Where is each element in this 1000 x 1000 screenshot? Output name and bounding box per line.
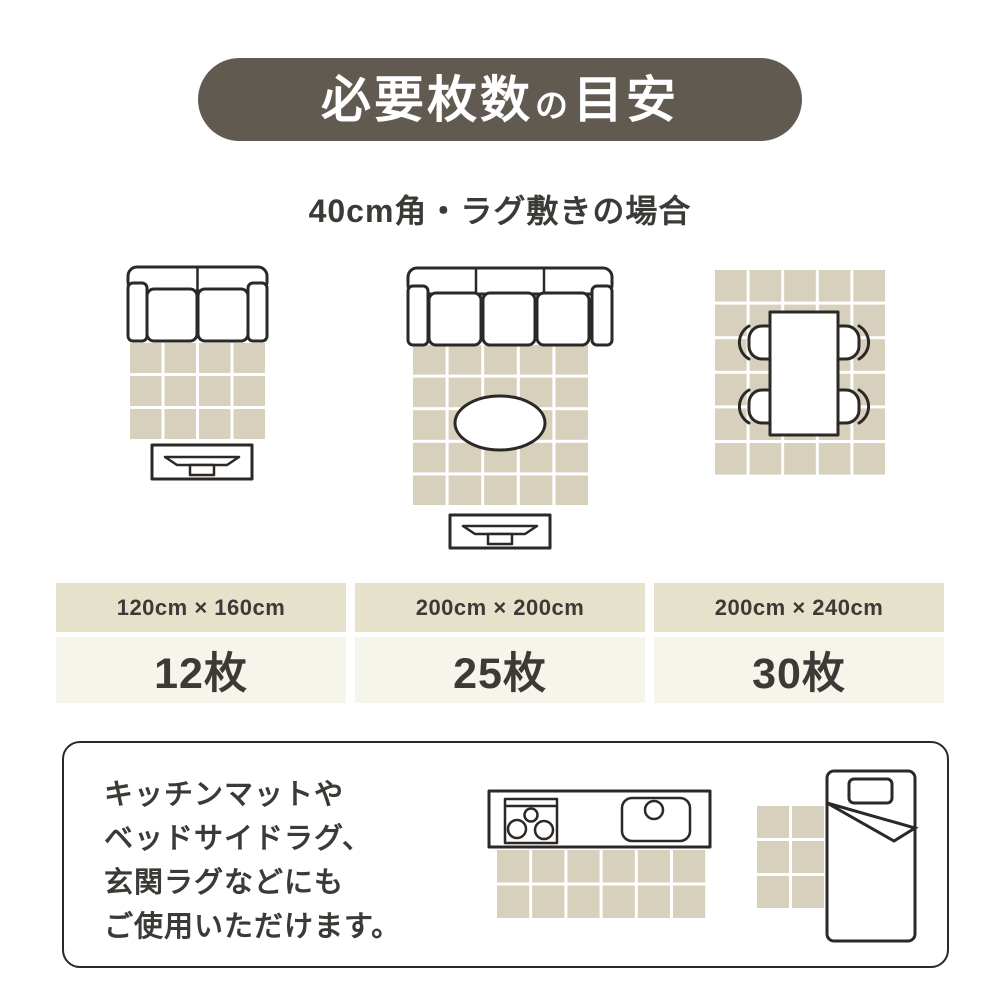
usage-note-text: キッチンマットや ベッドサイドラグ、 玄関ラグなどにも ご使用いただけます。 — [104, 773, 401, 949]
size-header: 200cm × 240cm — [654, 583, 944, 632]
kitchen-counter-icon — [489, 791, 710, 847]
infographic-page: 必要枚数 の 目安 40cm角・ラグ敷きの場合 — [0, 0, 1000, 1000]
title-particle: の — [535, 89, 571, 122]
title-part2: 目安 — [573, 75, 679, 125]
rug-tiles — [130, 343, 265, 439]
size-table: 120cm × 160cm 12枚 200cm × 200cm 25枚 200c… — [56, 583, 944, 703]
tile-count: 12枚 — [56, 637, 346, 703]
oval-table-icon — [455, 396, 545, 450]
bed-icon — [827, 771, 915, 941]
kitchen-mat-illustration — [479, 769, 719, 929]
room-diagram-200x200 — [395, 255, 615, 555]
subtitle: 40cm角・ラグ敷きの場合 — [0, 186, 1000, 232]
dining-table-icon — [770, 312, 838, 435]
usage-note-box: キッチンマットや ベッドサイドラグ、 玄関ラグなどにも ご使用いただけます。 — [62, 741, 949, 968]
tile-count: 25枚 — [355, 637, 645, 703]
title-part1: 必要枚数 — [321, 75, 533, 125]
note-line: ベッドサイドラグ、 — [104, 817, 401, 861]
table-column: 120cm × 160cm 12枚 — [56, 583, 346, 703]
size-header: 120cm × 160cm — [56, 583, 346, 632]
page-title: 必要枚数 の 目安 — [321, 75, 679, 125]
note-line: 玄関ラグなどにも — [104, 861, 401, 905]
bedside-rug-illustration — [744, 753, 924, 958]
tile-count: 30枚 — [654, 637, 944, 703]
kitchen-mat-tiles — [497, 850, 705, 918]
three-seat-sofa-icon — [408, 268, 612, 345]
table-column: 200cm × 240cm 30枚 — [654, 583, 944, 703]
bedside-rug-tiles — [757, 806, 824, 908]
note-line: キッチンマットや — [104, 773, 401, 817]
title-banner: 必要枚数 の 目安 — [198, 58, 802, 141]
tv-board-icon — [152, 445, 252, 479]
note-line: ご使用いただけます。 — [104, 905, 401, 949]
tv-board-icon — [450, 515, 550, 548]
room-diagram-200x240 — [705, 262, 895, 482]
room-diagram-120x160 — [95, 255, 305, 490]
two-seat-sofa-icon — [128, 267, 267, 341]
size-header: 200cm × 200cm — [355, 583, 645, 632]
table-column: 200cm × 200cm 25枚 — [355, 583, 645, 703]
